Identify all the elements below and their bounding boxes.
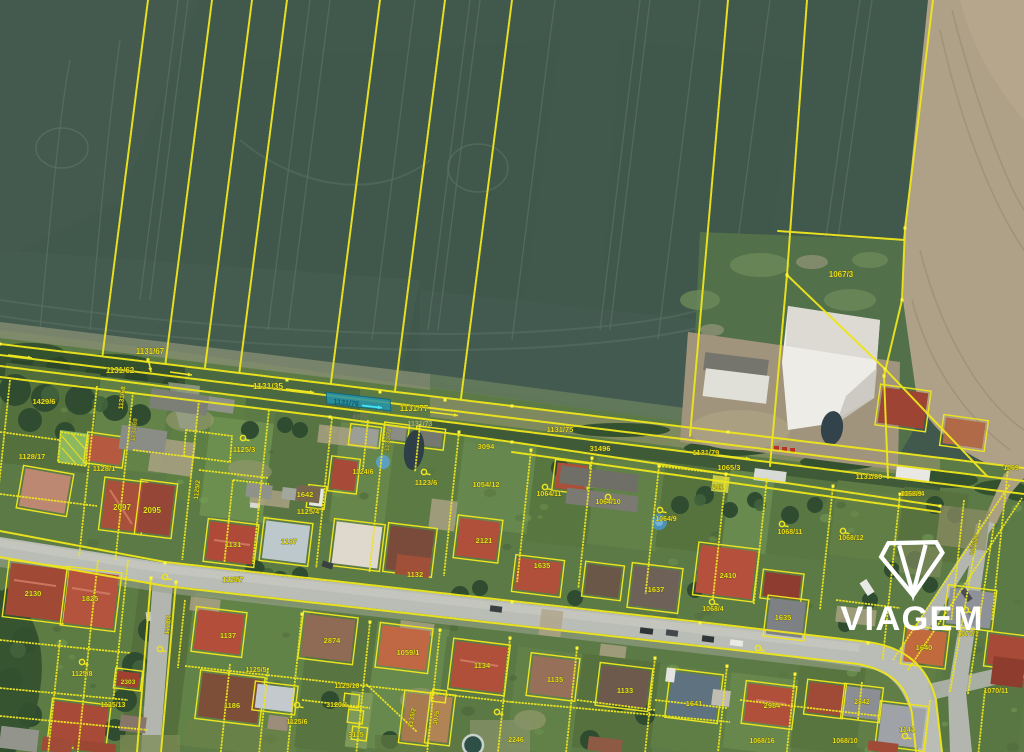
svg-text:1068/16: 1068/16	[749, 738, 774, 745]
svg-text:4972: 4972	[352, 414, 368, 421]
svg-text:1125/7: 1125/7	[222, 577, 243, 584]
svg-text:1125/10: 1125/10	[335, 683, 360, 690]
svg-text:1825: 1825	[82, 594, 99, 603]
svg-text:1068/4: 1068/4	[702, 606, 724, 613]
svg-text:1128/1: 1128/1	[93, 464, 116, 473]
svg-text:1067/3: 1067/3	[829, 270, 854, 279]
svg-text:1429/6: 1429/6	[33, 397, 56, 406]
svg-text:3094: 3094	[478, 442, 496, 451]
svg-text:1131/77: 1131/77	[400, 404, 429, 413]
svg-text:1186: 1186	[224, 701, 240, 710]
svg-text:1141: 1141	[899, 727, 914, 734]
svg-text:1131/80: 1131/80	[856, 472, 883, 481]
svg-text:1064/11: 1064/11	[537, 491, 562, 498]
svg-text:1131/62: 1131/62	[106, 366, 135, 375]
svg-text:2246: 2246	[508, 737, 524, 744]
svg-text:31496: 31496	[590, 444, 611, 453]
svg-text:1641: 1641	[686, 699, 703, 708]
svg-text:1635: 1635	[775, 613, 792, 622]
svg-text:1137: 1137	[220, 631, 236, 640]
svg-text:1642: 1642	[297, 490, 314, 499]
svg-text:2410: 2410	[720, 571, 737, 580]
svg-text:1131/75: 1131/75	[547, 425, 574, 434]
svg-text:1131/67: 1131/67	[136, 347, 165, 356]
svg-text:1068/9: 1068/9	[900, 491, 922, 498]
svg-text:1068/12: 1068/12	[838, 535, 863, 542]
svg-text:1635: 1635	[534, 561, 551, 570]
svg-text:1640: 1640	[916, 643, 933, 652]
svg-text:2842: 2842	[854, 699, 870, 706]
svg-text:1125/3: 1125/3	[233, 445, 256, 454]
svg-text:2130: 2130	[25, 589, 42, 598]
svg-text:1128/17: 1128/17	[19, 452, 46, 461]
svg-text:1064/10: 1064/10	[595, 499, 620, 506]
svg-text:2095: 2095	[143, 506, 161, 515]
svg-text:241: 241	[713, 484, 724, 491]
svg-text:2097: 2097	[113, 503, 131, 512]
svg-text:2121: 2121	[476, 536, 493, 545]
svg-text:1124/6: 1124/6	[352, 469, 373, 476]
svg-text:2984: 2984	[764, 701, 782, 710]
svg-text:1125/8: 1125/8	[71, 671, 92, 678]
svg-text:3115: 3115	[348, 732, 363, 739]
svg-text:1133: 1133	[617, 686, 633, 695]
svg-text:1064/9: 1064/9	[655, 516, 677, 523]
svg-text:1132: 1132	[407, 570, 423, 579]
svg-text:3120/1: 3120/1	[326, 702, 348, 709]
svg-text:1131: 1131	[225, 540, 241, 549]
svg-text:1131/35: 1131/35	[253, 381, 284, 391]
svg-text:1125/6: 1125/6	[286, 719, 307, 726]
svg-text:1131/79: 1131/79	[693, 448, 720, 457]
svg-text:1065/3: 1065/3	[718, 463, 741, 472]
svg-text:1069: 1069	[1003, 465, 1019, 472]
svg-text:VIAGEM: VIAGEM	[840, 600, 983, 638]
svg-text:1054/12: 1054/12	[472, 480, 499, 489]
svg-text:1125/4: 1125/4	[297, 507, 320, 516]
svg-text:1125/13: 1125/13	[101, 702, 126, 709]
svg-text:1135: 1135	[547, 675, 563, 684]
svg-text:1131/73: 1131/73	[408, 421, 433, 428]
svg-text:1125/5: 1125/5	[245, 667, 266, 674]
svg-text:2303: 2303	[121, 679, 136, 686]
svg-text:1059/1: 1059/1	[397, 648, 420, 657]
svg-text:1123/6: 1123/6	[415, 478, 438, 487]
svg-text:1134: 1134	[474, 661, 491, 670]
svg-text:2874: 2874	[324, 636, 342, 645]
svg-text:1068/11: 1068/11	[778, 529, 803, 536]
svg-text:1187: 1187	[281, 537, 297, 546]
svg-text:1637: 1637	[648, 585, 665, 594]
svg-text:1068/10: 1068/10	[832, 738, 857, 745]
svg-text:1070/11: 1070/11	[984, 688, 1009, 695]
